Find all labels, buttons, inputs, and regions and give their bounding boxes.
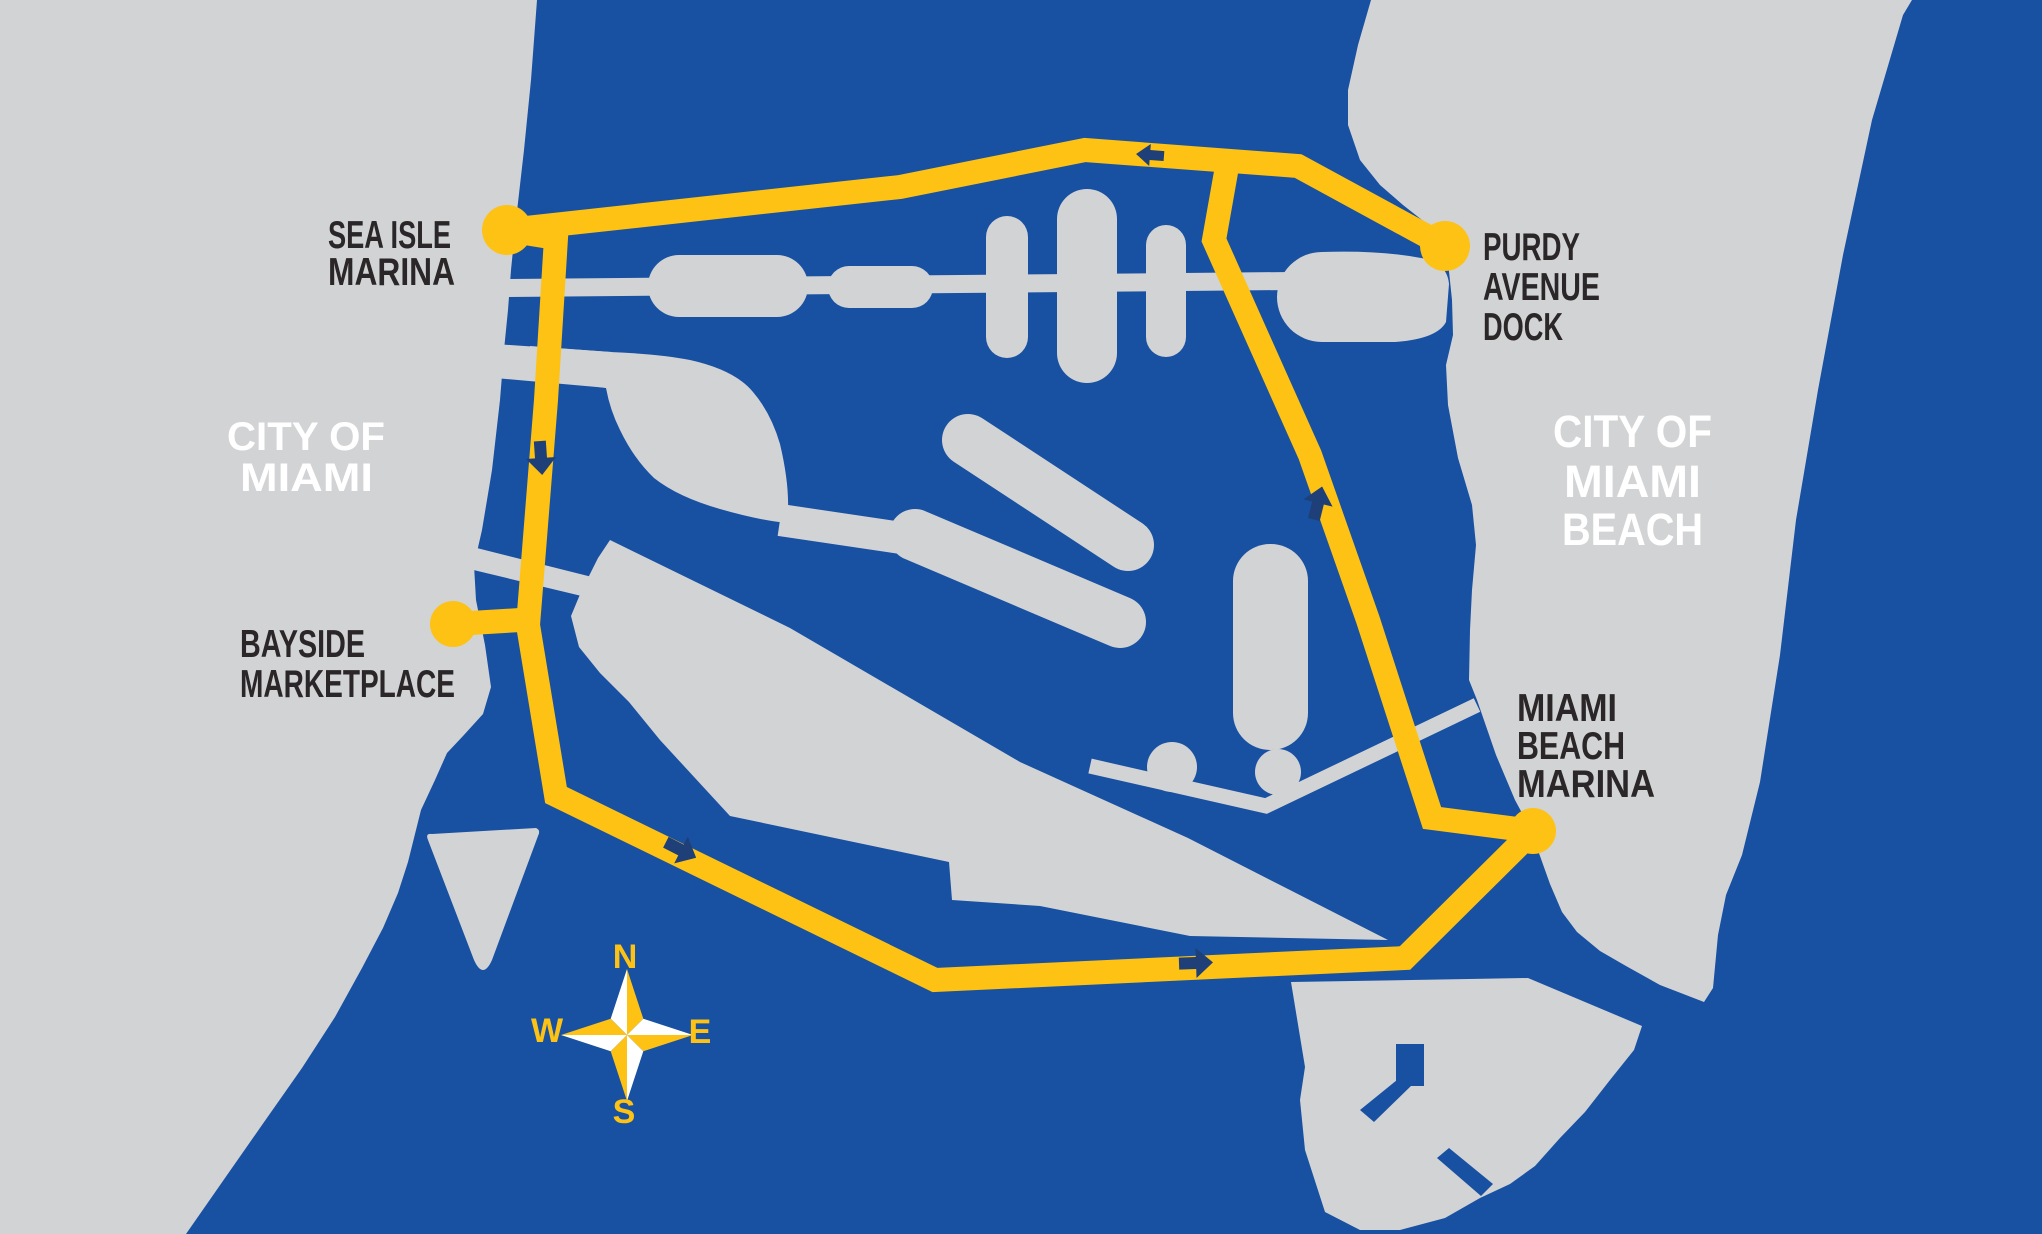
svg-text:CITY OF: CITY OF	[1553, 406, 1712, 457]
svg-text:DOCK: DOCK	[1483, 306, 1563, 349]
svg-text:AVENUE: AVENUE	[1483, 266, 1600, 309]
svg-text:MARINA: MARINA	[328, 251, 455, 294]
svg-text:BEACH: BEACH	[1517, 725, 1625, 768]
svg-text:N: N	[613, 938, 638, 976]
svg-text:MIAMI: MIAMI	[1517, 687, 1617, 730]
svg-text:PURDY: PURDY	[1483, 226, 1580, 269]
svg-text:BAYSIDE: BAYSIDE	[240, 623, 365, 666]
svg-text:MIAMI: MIAMI	[1564, 456, 1701, 507]
svg-text:MIAMI: MIAMI	[240, 456, 373, 500]
svg-text:CITY OF: CITY OF	[227, 415, 385, 459]
svg-text:E: E	[689, 1013, 712, 1051]
svg-text:W: W	[531, 1012, 564, 1050]
svg-text:BEACH: BEACH	[1562, 504, 1703, 555]
svg-text:MARKETPLACE: MARKETPLACE	[240, 663, 455, 706]
svg-text:MARINA: MARINA	[1517, 763, 1655, 806]
svg-text:S: S	[613, 1093, 636, 1131]
